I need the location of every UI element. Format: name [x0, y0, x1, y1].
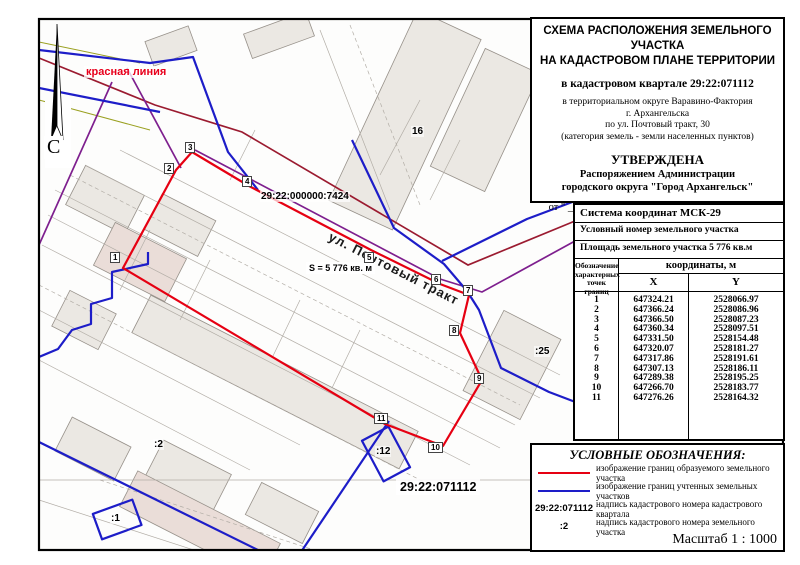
location-line1: в территориальном округе Варавино-Фактор…: [532, 97, 783, 109]
point-number-cell: 6: [575, 344, 618, 354]
cadastral-quarter-line: в кадастровом квартале 29:22:071112: [532, 78, 783, 90]
y-value-cell: 2528154.48: [689, 334, 783, 344]
compass-north-label: С: [44, 136, 63, 159]
point-number-cell: 7: [575, 354, 618, 364]
scale-label: Масштаб 1 : 1000: [672, 532, 777, 548]
boundary-point-7: 7: [463, 285, 473, 296]
parcel-1-label: :1: [110, 513, 121, 524]
red-line-label: красная линия: [84, 66, 168, 78]
coordinates-header: координаты, м: [619, 259, 783, 274]
coordinate-table: Система координат МСК-29 Условный номер …: [573, 203, 785, 441]
y-value-cell: 2528186.11: [689, 364, 783, 374]
coordinate-system-row: Система координат МСК-29: [575, 205, 783, 223]
y-value-cell: 2528191.61: [689, 354, 783, 364]
x-value-cell: 647317.86: [619, 354, 688, 364]
location-block: в территориальном округе Варавино-Фактор…: [532, 97, 783, 143]
legend: УСЛОВНЫЕ ОБОЗНАЧЕНИЯ: изображение границ…: [530, 443, 785, 552]
point-number-cell: 5: [575, 334, 618, 344]
boundary-point-4: 4: [242, 176, 252, 187]
x-value-cell: 647366.50: [619, 315, 688, 325]
table-header: Обозначение характерных точек границ коо…: [575, 259, 783, 292]
approved-line2: городского округа "Город Архангельск": [532, 181, 783, 194]
x-value-cell: 647366.24: [619, 305, 688, 315]
y-value-cell: 2528097.51: [689, 324, 783, 334]
boundary-point-5: 5: [364, 252, 374, 263]
legend-item-label: надпись кадастрового номера кадастрового…: [596, 499, 783, 519]
y-column-header: Y: [689, 274, 783, 291]
document-title-line2: НА КАДАСТРОВОМ ПЛАНЕ ТЕРРИТОРИИ: [532, 54, 783, 69]
x-values-column: 647324.21647366.24647366.50647360.346473…: [619, 292, 689, 439]
parcel-12-label: :12: [375, 446, 391, 457]
document-title-line1: СХЕМА РАСПОЛОЖЕНИЯ ЗЕМЕЛЬНОГО УЧАСТКА: [532, 24, 783, 54]
conditional-number-row: Условный номер земельного участка: [575, 223, 783, 241]
boundary-point-8: 8: [449, 325, 459, 336]
point-column-header: Обозначение характерных точек границ: [575, 259, 619, 291]
x-value-cell: 647307.13: [619, 364, 688, 374]
point-number-cell: 1: [575, 295, 618, 305]
boundary-point-1: 1: [110, 252, 120, 263]
legend-title: УСЛОВНЫЕ ОБОЗНАЧЕНИЯ:: [532, 448, 783, 463]
point-number-cell: 3: [575, 315, 618, 325]
location-line3: по ул. Почтовый тракт, 30: [532, 120, 783, 132]
legend-item-formed-boundary: изображение границ образуемого земельног…: [532, 464, 783, 481]
y-values-column: 2528066.972528086.962528087.232528097.51…: [689, 292, 783, 439]
boundary-point-10: 10: [428, 442, 443, 453]
y-value-cell: 2528183.77: [689, 383, 783, 393]
coordinate-rows: 1234567891011 647324.21647366.24647366.5…: [575, 292, 783, 439]
x-value-cell: 647289.38: [619, 373, 688, 383]
location-line4: (категория земель - земли населенных пун…: [532, 132, 783, 144]
y-value-cell: 2528087.23: [689, 315, 783, 325]
quarter-number-sample: 29:22:071112: [532, 503, 596, 514]
x-value-cell: 647324.21: [619, 295, 688, 305]
y-value-cell: 2528164.32: [689, 393, 783, 403]
legend-item-registered-boundary: изображение границ учтенных земельных уч…: [532, 482, 783, 499]
approved-heading: УТВЕРЖДЕНА: [532, 152, 783, 168]
x-value-cell: 647360.34: [619, 324, 688, 334]
y-value-cell: 2528195.25: [689, 373, 783, 383]
x-value-cell: 647320.07: [619, 344, 688, 354]
point-number-cell: 9: [575, 373, 618, 383]
point-number-cell: 11: [575, 393, 618, 403]
point-number-cell: 2: [575, 305, 618, 315]
legend-item-label: изображение границ образуемого земельног…: [596, 463, 783, 483]
parcel-number-sample: :2: [532, 521, 596, 532]
y-value-cell: 2528066.97: [689, 295, 783, 305]
legend-item-quarter-number: 29:22:071112 надпись кадастрового номера…: [532, 500, 783, 517]
approved-line1: Распоряжением Администрации: [532, 168, 783, 181]
blue-line-sample: [538, 490, 590, 492]
x-value-cell: 647276.26: [619, 393, 688, 403]
parcel-25-label: :25: [534, 346, 550, 357]
boundary-point-11: 11: [374, 413, 388, 424]
x-value-cell: 647266.70: [619, 383, 688, 393]
location-line2: г. Архангельска: [532, 109, 783, 121]
point-number-cell: 4: [575, 324, 618, 334]
title-block: СХЕМА РАСПОЛОЖЕНИЯ ЗЕМЕЛЬНОГО УЧАСТКА НА…: [530, 17, 785, 203]
red-line-sample: [538, 472, 590, 474]
document-title: СХЕМА РАСПОЛОЖЕНИЯ ЗЕМЕЛЬНОГО УЧАСТКА НА…: [532, 24, 783, 69]
boundary-point-2: 2: [164, 163, 174, 174]
point-number-cell: 10: [575, 383, 618, 393]
boundary-point-9: 9: [474, 373, 484, 384]
parent-parcel-number-label: 29:22:000000:7424: [260, 191, 350, 202]
point-number-cell: 8: [575, 364, 618, 374]
point-number-column: 1234567891011: [575, 292, 619, 439]
x-value-cell: 647331.50: [619, 334, 688, 344]
parcel-area-label: S = 5 776 кв. м: [306, 262, 375, 274]
cadastral-quarter-label: 29:22:071112: [396, 479, 480, 495]
boundary-point-6: 6: [431, 274, 441, 285]
legend-item-label: изображение границ учтенных земельных уч…: [596, 481, 783, 501]
parcel-2-label: :2: [153, 439, 164, 450]
building-16-label: 16: [411, 126, 424, 137]
parcel-area-row: Площадь земельного участка 5 776 кв.м: [575, 241, 783, 259]
x-column-header: X: [619, 274, 689, 291]
y-value-cell: 2528086.96: [689, 305, 783, 315]
cadastral-scheme-sheet: С красная линия 29:22:000000:7424 ул. По…: [0, 0, 800, 565]
boundary-point-3: 3: [185, 142, 195, 153]
y-value-cell: 2528181.27: [689, 344, 783, 354]
